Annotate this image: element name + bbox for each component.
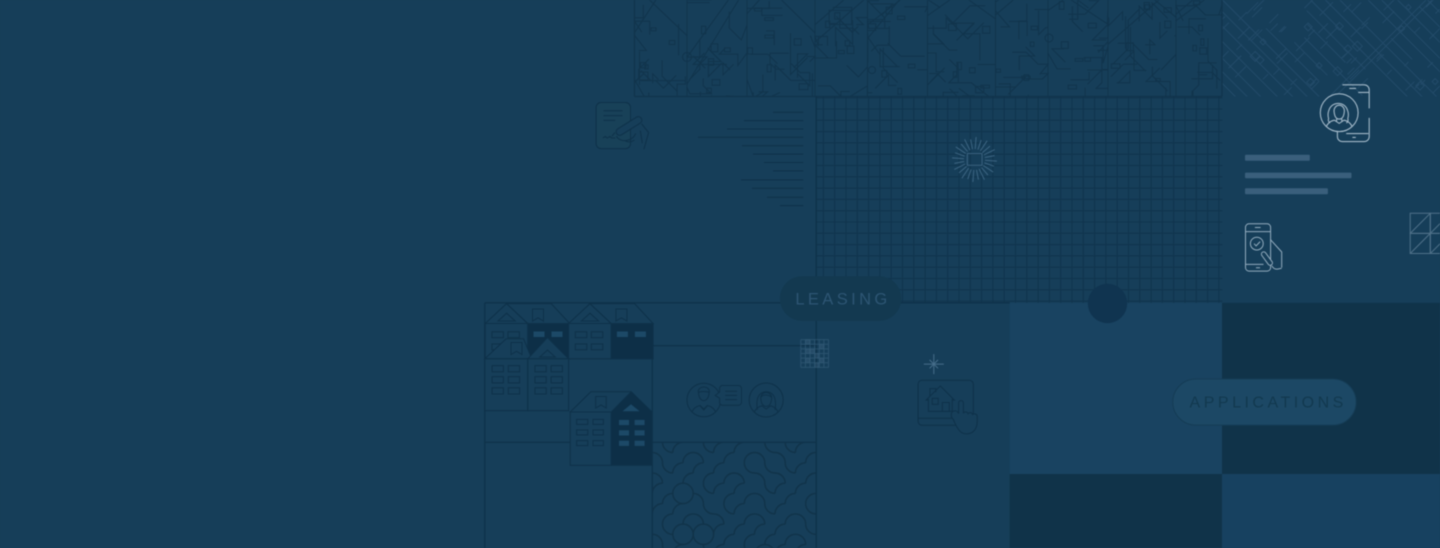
svg-text:LEASING: LEASING — [795, 291, 890, 309]
svg-text:APPLICATIONS: APPLICATIONS — [1190, 395, 1347, 412]
